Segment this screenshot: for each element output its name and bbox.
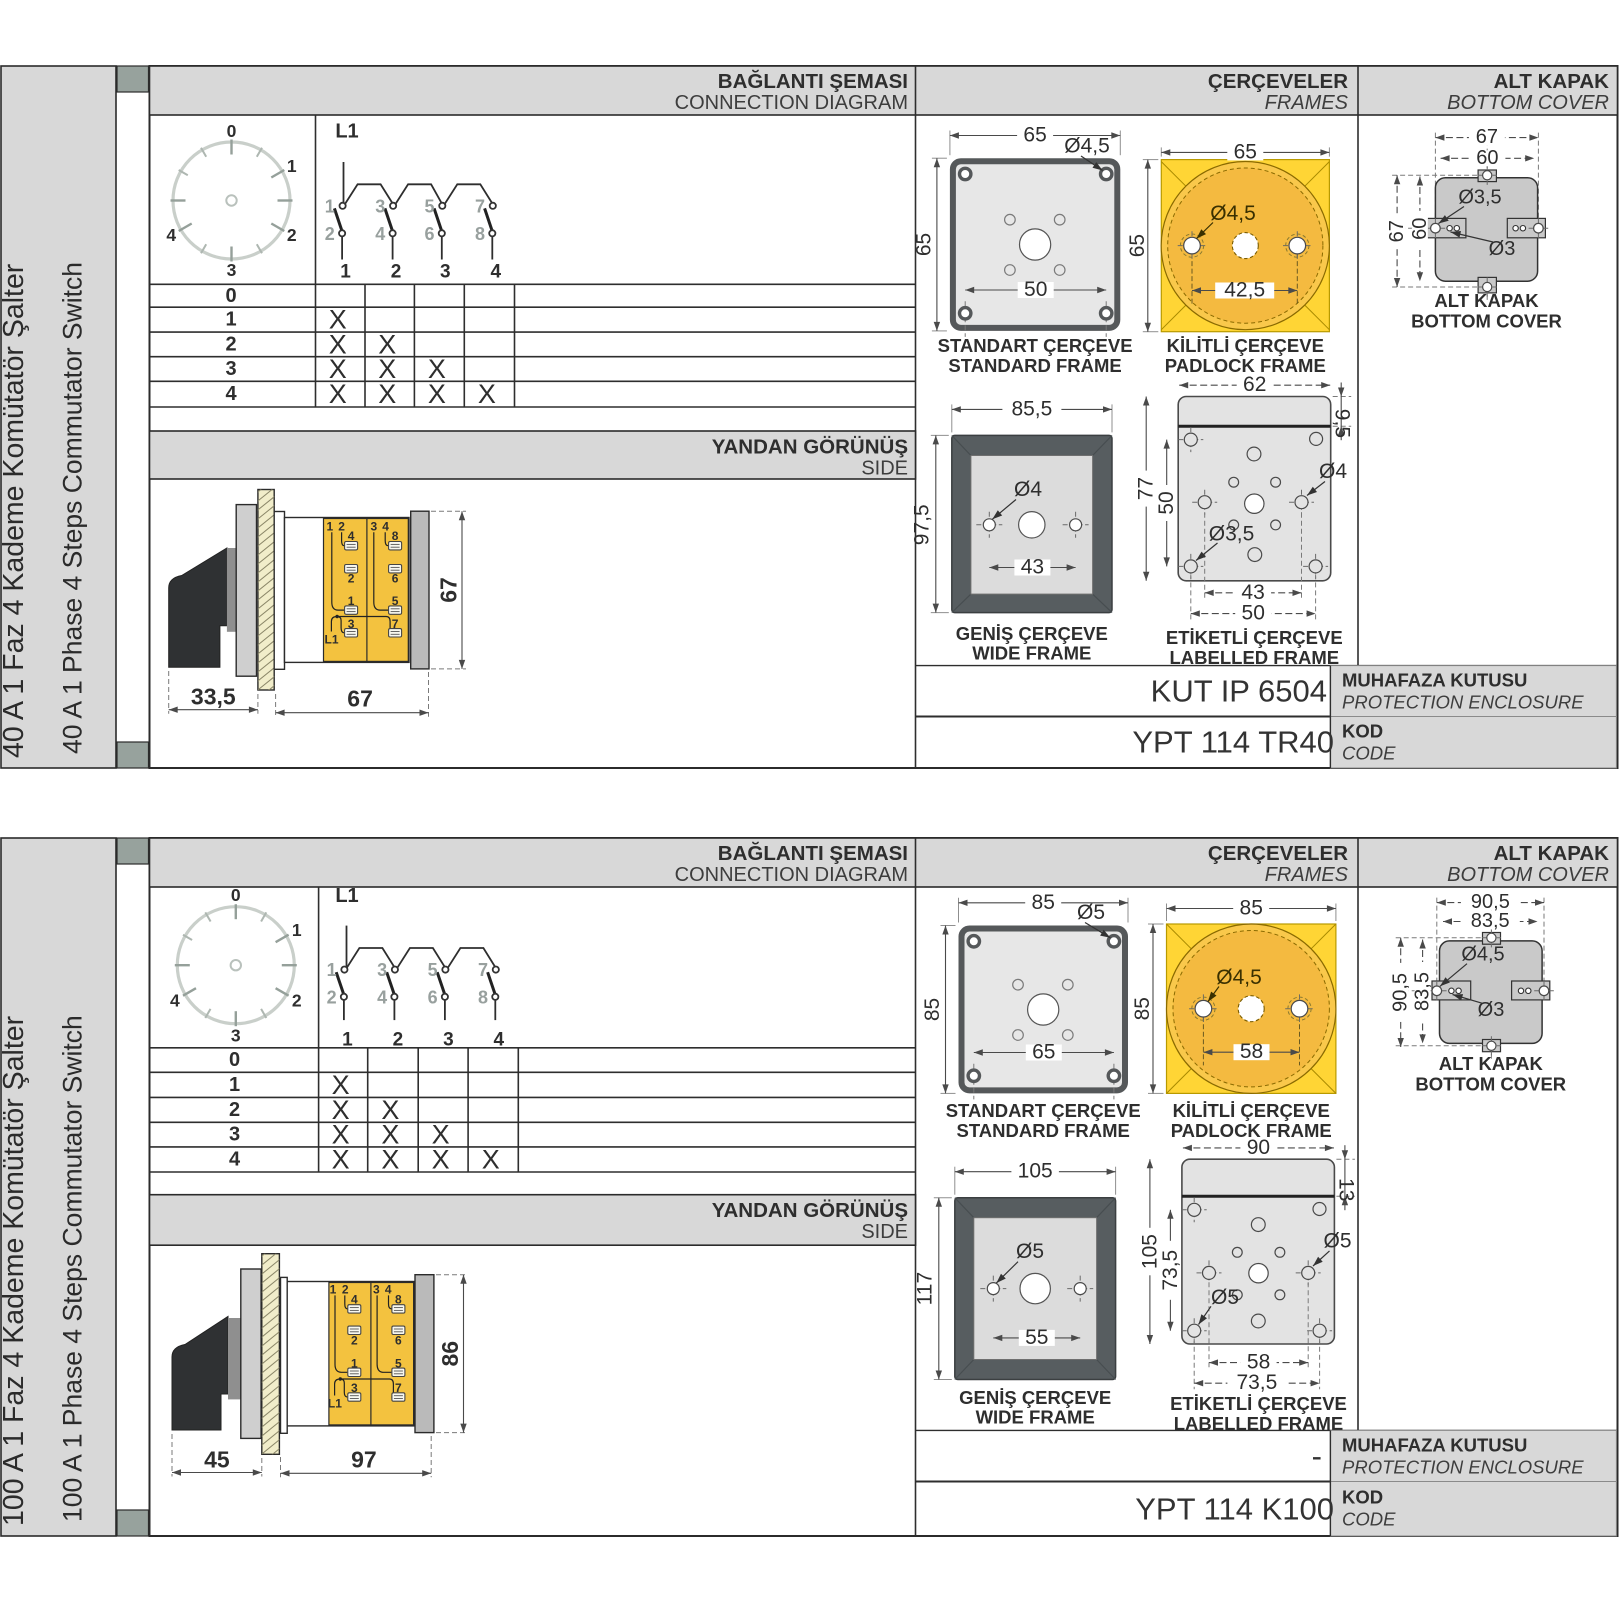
svg-text:YPT 114 K100: YPT 114 K100 [1135, 1491, 1334, 1526]
svg-text:8: 8 [475, 224, 485, 244]
svg-text:YPT 114 TR40: YPT 114 TR40 [1132, 725, 1334, 760]
svg-text:2: 2 [229, 1099, 240, 1121]
svg-text:WIDE FRAME: WIDE FRAME [976, 1407, 1095, 1428]
svg-text:5: 5 [428, 960, 438, 980]
svg-text:X: X [378, 379, 396, 409]
svg-text:6: 6 [428, 987, 438, 1007]
svg-text:ALT KAPAK: ALT KAPAK [1494, 842, 1610, 865]
svg-text:X: X [428, 379, 446, 409]
svg-text:KOD: KOD [1342, 1487, 1383, 1508]
svg-text:PROTECTION ENCLOSURE: PROTECTION ENCLOSURE [1342, 692, 1584, 713]
svg-text:1: 1 [287, 156, 297, 176]
svg-text:3: 3 [373, 1283, 380, 1297]
svg-text:43: 43 [1021, 556, 1044, 579]
svg-text:STANDARD FRAME: STANDARD FRAME [948, 355, 1121, 376]
svg-text:2: 2 [225, 333, 236, 355]
svg-text:65: 65 [1032, 1041, 1055, 1064]
svg-text:42,5: 42,5 [1224, 279, 1265, 302]
svg-text:0: 0 [225, 285, 236, 307]
svg-text:1: 1 [348, 594, 355, 608]
svg-text:4: 4 [377, 987, 387, 1007]
svg-text:65: 65 [1126, 234, 1149, 257]
svg-text:2: 2 [327, 987, 337, 1007]
svg-text:2: 2 [338, 520, 345, 534]
svg-text:4: 4 [375, 224, 385, 244]
svg-text:SIDE: SIDE [861, 458, 908, 480]
svg-text:KİLİTLİ ÇERÇEVE: KİLİTLİ ÇERÇEVE [1167, 335, 1324, 356]
svg-text:5: 5 [392, 594, 399, 608]
svg-text:L1: L1 [328, 1397, 342, 1411]
svg-text:7: 7 [395, 1381, 402, 1395]
svg-text:SIDE: SIDE [861, 1221, 908, 1243]
svg-text:67: 67 [436, 577, 462, 603]
svg-text:ETİKETLİ ÇERÇEVE: ETİKETLİ ÇERÇEVE [1166, 627, 1343, 648]
svg-text:Ø4: Ø4 [1014, 478, 1042, 501]
svg-text:X: X [329, 379, 347, 409]
svg-text:ALT KAPAK: ALT KAPAK [1434, 290, 1539, 311]
svg-text:2: 2 [287, 225, 297, 245]
svg-text:8: 8 [478, 987, 488, 1007]
svg-text:2: 2 [292, 990, 302, 1010]
svg-text:9,5: 9,5 [1331, 409, 1354, 438]
svg-text:73,5: 73,5 [1236, 1371, 1277, 1394]
svg-text:BOTTOM COVER: BOTTOM COVER [1447, 92, 1609, 114]
svg-text:Ø4,5: Ø4,5 [1210, 202, 1256, 225]
svg-text:1: 1 [340, 262, 351, 283]
svg-text:L1: L1 [324, 633, 338, 647]
svg-text:CODE: CODE [1342, 742, 1396, 763]
svg-text:Ø3: Ø3 [1489, 238, 1516, 260]
svg-text:55: 55 [1025, 1326, 1048, 1349]
svg-text:X: X [432, 1145, 450, 1175]
svg-text:STANDART ÇERÇEVE: STANDART ÇERÇEVE [946, 1100, 1141, 1121]
svg-text:67: 67 [1386, 220, 1408, 242]
svg-text:BOTTOM COVER: BOTTOM COVER [1447, 864, 1609, 886]
svg-text:X: X [381, 1145, 399, 1175]
svg-text:45: 45 [204, 1447, 230, 1473]
svg-text:1: 1 [292, 920, 302, 940]
svg-text:83,5: 83,5 [1471, 910, 1510, 932]
svg-text:GENİŞ ÇERÇEVE: GENİŞ ÇERÇEVE [956, 623, 1108, 644]
svg-text:65: 65 [912, 233, 935, 256]
svg-text:BOTTOM COVER: BOTTOM COVER [1411, 311, 1562, 332]
svg-text:MUHAFAZA KUTUSU: MUHAFAZA KUTUSU [1342, 1435, 1527, 1456]
svg-text:50: 50 [1242, 602, 1265, 625]
svg-text:73,5: 73,5 [1159, 1250, 1182, 1291]
svg-text:Ø4: Ø4 [1319, 460, 1347, 483]
svg-text:GENİŞ ÇERÇEVE: GENİŞ ÇERÇEVE [959, 1387, 1111, 1408]
svg-text:ÇERÇEVELER: ÇERÇEVELER [1208, 70, 1348, 93]
svg-text:Ø4,5: Ø4,5 [1064, 135, 1110, 158]
svg-text:YANDAN GÖRÜNÜŞ: YANDAN GÖRÜNÜŞ [712, 1199, 908, 1222]
svg-text:ÇERÇEVELER: ÇERÇEVELER [1208, 842, 1348, 865]
svg-text:0: 0 [227, 121, 237, 141]
svg-text:4: 4 [385, 1283, 392, 1297]
svg-text:4: 4 [491, 262, 502, 283]
svg-text:43: 43 [1241, 581, 1264, 604]
svg-text:67: 67 [347, 686, 373, 712]
svg-text:0: 0 [231, 885, 241, 905]
svg-text:3: 3 [348, 617, 355, 631]
svg-text:KUT IP 6504: KUT IP 6504 [1151, 674, 1327, 709]
svg-text:40 A 1 Phase 4 Steps Commutato: 40 A 1 Phase 4 Steps Commutator Switch [58, 262, 88, 754]
svg-text:7: 7 [475, 196, 485, 216]
svg-text:3: 3 [225, 358, 236, 380]
svg-text:4: 4 [351, 1292, 358, 1306]
svg-text:ETİKETLİ ÇERÇEVE: ETİKETLİ ÇERÇEVE [1170, 1393, 1347, 1414]
svg-text:Ø5: Ø5 [1077, 901, 1105, 924]
svg-text:2: 2 [342, 1283, 349, 1297]
svg-text:CODE: CODE [1342, 1509, 1396, 1530]
svg-text:3: 3 [375, 196, 385, 216]
svg-text:58: 58 [1247, 1351, 1270, 1374]
svg-text:85: 85 [1131, 997, 1154, 1020]
svg-text:MUHAFAZA KUTUSU: MUHAFAZA KUTUSU [1342, 670, 1527, 691]
svg-text:8: 8 [395, 1292, 402, 1306]
svg-text:STANDART ÇERÇEVE: STANDART ÇERÇEVE [938, 335, 1133, 356]
svg-text:62: 62 [1243, 373, 1266, 396]
svg-text:3: 3 [229, 1124, 240, 1146]
svg-text:Ø3,5: Ø3,5 [1209, 523, 1255, 546]
svg-text:1: 1 [330, 1283, 337, 1297]
svg-text:1: 1 [326, 520, 333, 534]
svg-text:1: 1 [225, 309, 236, 331]
svg-text:85: 85 [921, 998, 944, 1021]
svg-text:FRAMES: FRAMES [1265, 864, 1349, 886]
svg-text:3: 3 [351, 1381, 358, 1395]
svg-text:105: 105 [1018, 1160, 1053, 1183]
svg-text:CONNECTION DIAGRAM: CONNECTION DIAGRAM [675, 864, 908, 886]
svg-text:1: 1 [325, 196, 335, 216]
svg-text:50: 50 [1024, 278, 1047, 301]
svg-text:FRAMES: FRAMES [1265, 92, 1349, 114]
svg-text:4: 4 [382, 520, 389, 534]
svg-text:3: 3 [377, 960, 387, 980]
svg-text:2: 2 [351, 1333, 358, 1347]
svg-text:0: 0 [229, 1049, 240, 1071]
svg-text:BAĞLANTI ŞEMASI: BAĞLANTI ŞEMASI [718, 841, 908, 865]
svg-text:50: 50 [1155, 491, 1178, 514]
svg-text:ALT KAPAK: ALT KAPAK [1439, 1053, 1544, 1074]
svg-text:7: 7 [478, 960, 488, 980]
svg-text:83,5: 83,5 [1412, 972, 1434, 1011]
svg-text:85: 85 [1240, 897, 1263, 920]
svg-text:58: 58 [1240, 1040, 1263, 1063]
svg-text:4: 4 [170, 990, 180, 1010]
svg-text:L1: L1 [335, 121, 358, 143]
svg-text:7: 7 [392, 617, 399, 631]
svg-text:90,5: 90,5 [1390, 973, 1412, 1012]
svg-text:100 A 1 Faz 4 Kademe Komütatör: 100 A 1 Faz 4 Kademe Komütatör Şalter [0, 1015, 30, 1526]
svg-text:PROTECTION ENCLOSURE: PROTECTION ENCLOSURE [1342, 1457, 1584, 1478]
svg-text:2: 2 [391, 262, 402, 283]
svg-text:Ø3,5: Ø3,5 [1458, 187, 1501, 209]
svg-text:ALT KAPAK: ALT KAPAK [1494, 70, 1610, 93]
svg-text:67: 67 [1476, 126, 1498, 148]
svg-text:97,5: 97,5 [910, 504, 933, 545]
svg-text:Ø4,5: Ø4,5 [1461, 944, 1504, 966]
svg-text:85: 85 [1032, 891, 1055, 914]
svg-text:6: 6 [395, 1333, 402, 1347]
svg-text:33,5: 33,5 [191, 684, 236, 710]
svg-text:6: 6 [392, 572, 399, 586]
svg-text:5: 5 [395, 1356, 402, 1370]
svg-text:65: 65 [1234, 140, 1257, 163]
svg-text:13: 13 [1334, 1178, 1357, 1201]
svg-text:117: 117 [913, 1272, 936, 1305]
svg-text:6: 6 [424, 224, 434, 244]
svg-text:X: X [478, 379, 496, 409]
svg-text:3: 3 [440, 262, 451, 283]
svg-text:40 A 1 Faz 4 Kademe Komütatör: 40 A 1 Faz 4 Kademe Komütatör Şalter [0, 263, 30, 758]
svg-text:LABELLED FRAME: LABELLED FRAME [1170, 647, 1340, 668]
svg-text:60: 60 [1476, 147, 1498, 169]
svg-text:KİLİTLİ ÇERÇEVE: KİLİTLİ ÇERÇEVE [1173, 1100, 1330, 1121]
svg-text:BAĞLANTI ŞEMASI: BAĞLANTI ŞEMASI [718, 69, 908, 93]
svg-text:60: 60 [1409, 218, 1431, 240]
svg-text:X: X [332, 1145, 350, 1175]
svg-text:4: 4 [348, 529, 355, 543]
svg-text:65: 65 [1023, 124, 1046, 147]
svg-text:2: 2 [348, 572, 355, 586]
svg-text:85,5: 85,5 [1011, 397, 1052, 420]
svg-text:8: 8 [392, 529, 399, 543]
svg-text:Ø5: Ø5 [1211, 1286, 1239, 1309]
svg-text:3: 3 [370, 520, 377, 534]
svg-text:Ø5: Ø5 [1323, 1229, 1351, 1252]
svg-text:YANDAN GÖRÜNÜŞ: YANDAN GÖRÜNÜŞ [712, 436, 908, 459]
svg-text:KOD: KOD [1342, 720, 1383, 741]
svg-text:1: 1 [229, 1074, 240, 1096]
svg-text:3: 3 [227, 260, 237, 280]
svg-text:BOTTOM COVER: BOTTOM COVER [1415, 1074, 1566, 1095]
svg-text:3: 3 [231, 1026, 241, 1046]
svg-text:X: X [482, 1145, 500, 1175]
svg-text:4: 4 [225, 383, 237, 405]
svg-text:L1: L1 [335, 885, 358, 907]
svg-text:1: 1 [327, 960, 337, 980]
svg-text:Ø5: Ø5 [1016, 1240, 1044, 1263]
svg-text:Ø4,5: Ø4,5 [1216, 966, 1262, 989]
svg-text:4: 4 [229, 1149, 241, 1171]
svg-text:90: 90 [1247, 1136, 1270, 1159]
svg-text:WIDE FRAME: WIDE FRAME [972, 643, 1091, 664]
svg-text:5: 5 [424, 196, 434, 216]
svg-text:97: 97 [351, 1446, 377, 1472]
svg-text:1: 1 [351, 1356, 358, 1370]
svg-text:86: 86 [437, 1341, 463, 1367]
svg-text:4: 4 [166, 225, 176, 245]
svg-text:STANDARD FRAME: STANDARD FRAME [957, 1120, 1130, 1141]
svg-text:-: - [1312, 1439, 1322, 1474]
svg-text:2: 2 [325, 224, 335, 244]
svg-text:CONNECTION DIAGRAM: CONNECTION DIAGRAM [675, 92, 908, 114]
svg-text:100 A 1 Phase 4 Steps Commutat: 100 A 1 Phase 4 Steps Commutator Switch [58, 1015, 88, 1522]
